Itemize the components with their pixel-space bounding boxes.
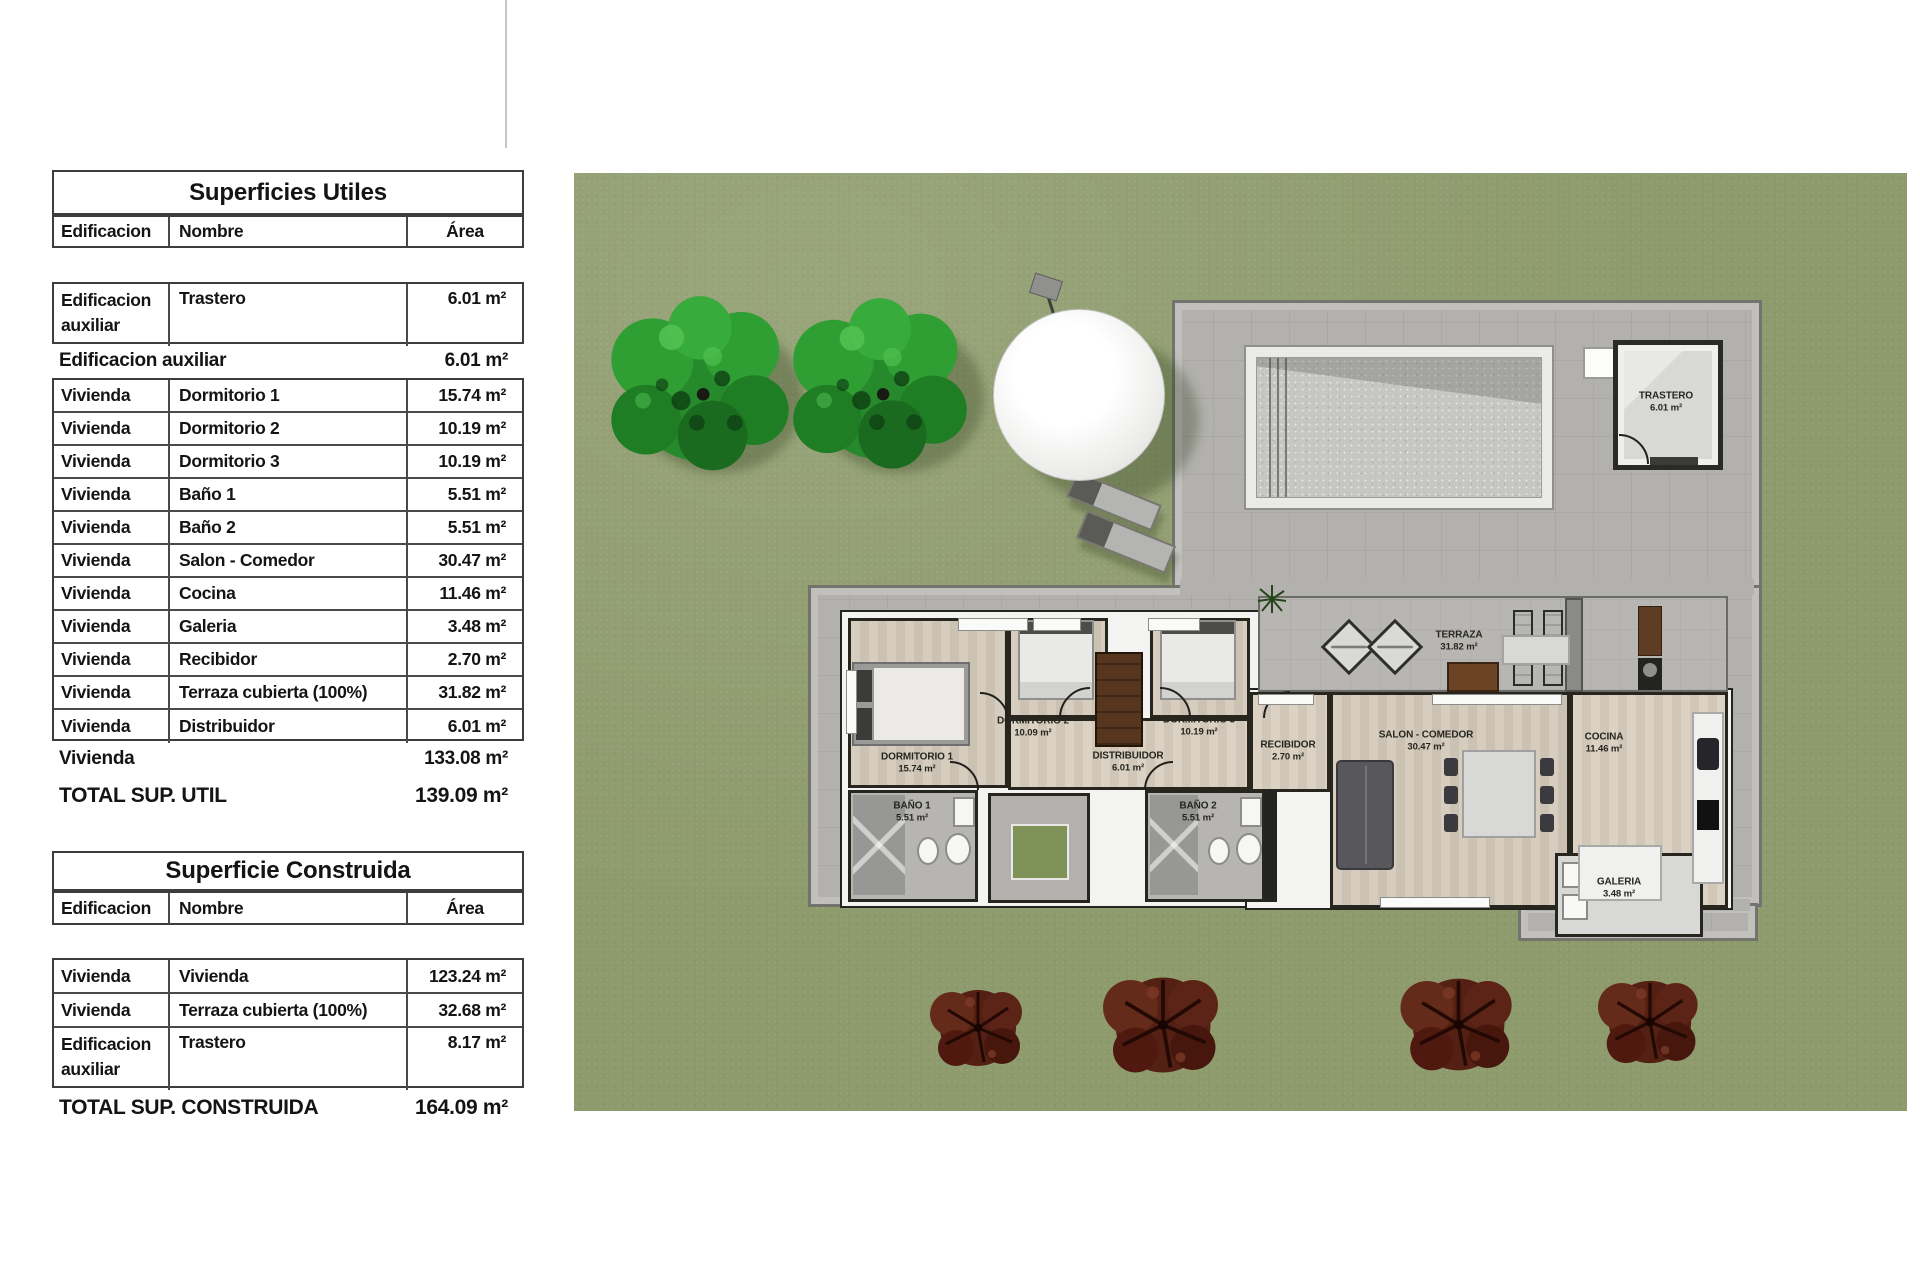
room-area: 30.47 m² (1379, 741, 1474, 753)
room-area: 10.19 m² (1163, 726, 1235, 738)
cell-area: 123.24 m² (406, 960, 522, 992)
room-area: 5.51 m² (893, 812, 930, 824)
cell-nombre: Dormitorio 3 (168, 446, 406, 477)
cell-area: 3.48 m² (406, 611, 522, 642)
cell-area: 8.17 m² (406, 1028, 522, 1090)
table-row: ViviendaDormitorio 210.19 m² (54, 413, 522, 446)
cell-area: 11.46 m² (406, 578, 522, 609)
cell-nombre: Distribuidor (168, 710, 406, 743)
cell-nombre: Dormitorio 1 (168, 380, 406, 411)
table-row: ViviendaBaño 25.51 m² (54, 512, 522, 545)
cell-nombre: Vivienda (168, 960, 406, 992)
cell-area: 30.47 m² (406, 545, 522, 576)
label-terraza: TERRAZA31.82 m² (1435, 628, 1482, 653)
table-row: ViviendaDormitorio 310.19 m² (54, 446, 522, 479)
cell-edificacion: Vivienda (54, 413, 168, 444)
table-title-text: Superficies Utiles (189, 179, 387, 207)
room-name: DORMITORIO 1 (881, 750, 953, 763)
room-area: 31.82 m² (1435, 641, 1482, 653)
cell-edificacion: Vivienda (54, 545, 168, 576)
superficies-utiles-title: Superficies Utiles (52, 170, 524, 215)
room-area: 6.01 m² (1639, 402, 1693, 414)
superficies-utiles-rows: Edificacion auxiliarTrastero6.01 m² (52, 282, 524, 344)
label-dormitorio-2: DORMITORIO 210.09 m² (997, 714, 1069, 739)
room-area: 2.70 m² (1260, 751, 1315, 763)
table-row: ViviendaTerraza cubierta (100%)31.82 m² (54, 677, 522, 710)
table-row: ViviendaCocina11.46 m² (54, 578, 522, 611)
table-row: Edificacion auxiliarTrastero6.01 m² (54, 284, 522, 346)
page: Superficies Utiles Edificacion Nombre Ár… (0, 0, 1920, 1280)
cell-nombre: Trastero (168, 284, 406, 346)
label-cocina: COCINA11.46 m² (1585, 730, 1624, 755)
cell-edificacion: Edificacion auxiliar (54, 1028, 168, 1090)
cell-area: 32.68 m² (406, 994, 522, 1026)
room-name: BAÑO 1 (893, 799, 930, 812)
superficie-construida-rows: ViviendaVivienda123.24 m²ViviendaTerraza… (52, 958, 524, 1088)
cell-nombre: Recibidor (168, 644, 406, 675)
superficies-utiles-total: TOTAL SUP. UTIL139.09 m² (52, 776, 524, 816)
cell-nombre: Baño 1 (168, 479, 406, 510)
label-dormitorio-3: DORMITORIO 310.19 m² (1163, 713, 1235, 738)
window (1033, 618, 1081, 631)
table-row: ViviendaRecibidor2.70 m² (54, 644, 522, 677)
cell-edificacion: Vivienda (54, 578, 168, 609)
cell-edificacion: Vivienda (54, 512, 168, 543)
label-trastero: TRASTERO6.01 m² (1639, 389, 1693, 414)
cell-area: 5.51 m² (406, 512, 522, 543)
cell-edificacion: Vivienda (54, 960, 168, 992)
cell-edificacion: Vivienda (54, 380, 168, 411)
parasol-anchor (1030, 273, 1063, 301)
window (1432, 694, 1562, 705)
cell-nombre: Terraza cubierta (100%) (168, 994, 406, 1026)
room-name: TERRAZA (1435, 628, 1482, 641)
column-header-area: Área (406, 893, 522, 923)
room-name: DORMITORIO 2 (997, 714, 1069, 727)
cell-edificacion: Vivienda (54, 994, 168, 1026)
total-label: TOTAL SUP. CONSTRUIDA (52, 1096, 318, 1120)
cell-nombre: Baño 2 (168, 512, 406, 543)
cell-nombre: Dormitorio 2 (168, 413, 406, 444)
cell-area: 15.74 m² (406, 380, 522, 411)
total-value: 139.09 m² (415, 784, 524, 808)
column-header-area: Área (406, 217, 522, 246)
window (1148, 618, 1200, 631)
cell-edificacion: Vivienda (54, 479, 168, 510)
total-value: 164.09 m² (415, 1096, 524, 1120)
cell-area: 10.19 m² (406, 446, 522, 477)
room-area: 6.01 m² (1092, 762, 1163, 774)
column-header-edificacion: Edificacion (54, 217, 168, 246)
label-bano-1: BAÑO 15.51 m² (893, 799, 930, 824)
cell-edificacion: Vivienda (54, 710, 168, 743)
label-galeria: GALERIA3.48 m² (1597, 875, 1641, 900)
label-salon-comedor: SALON - COMEDOR30.47 m² (1379, 728, 1474, 753)
total-label: TOTAL SUP. UTIL (52, 784, 227, 808)
window (958, 618, 1028, 631)
superficies-utiles-header: Edificacion Nombre Área (52, 215, 524, 248)
table-title-text: Superficie Construida (165, 857, 410, 885)
red-tree-icon (1386, 952, 1531, 1097)
summary-value: 6.01 m² (445, 350, 524, 372)
room-area: 10.09 m² (997, 727, 1069, 739)
table-row: ViviendaTerraza cubierta (100%)32.68 m² (54, 994, 522, 1028)
room-name: BAÑO 2 (1179, 799, 1216, 812)
cell-edificacion: Vivienda (54, 611, 168, 642)
table-row: ViviendaBaño 15.51 m² (54, 479, 522, 512)
window (846, 670, 857, 734)
table-row: ViviendaDormitorio 115.74 m² (54, 380, 522, 413)
room-name: SALON - COMEDOR (1379, 728, 1474, 741)
room-name: COCINA (1585, 730, 1624, 743)
window (1258, 694, 1314, 705)
label-recibidor: RECIBIDOR2.70 m² (1260, 738, 1315, 763)
green-tree-icon (787, 295, 973, 481)
table-row: ViviendaVivienda123.24 m² (54, 960, 522, 994)
label-bano-2: BAÑO 25.51 m² (1179, 799, 1216, 824)
superficies-utiles-summary: Edificacion auxiliar6.01 m² (52, 344, 524, 378)
column-header-nombre: Nombre (168, 893, 406, 923)
summary-label: Vivienda (52, 748, 134, 770)
superficie-construida-title: Superficie Construida (52, 851, 524, 891)
parasol (993, 309, 1165, 481)
table-row: Edificacion auxiliarTrastero8.17 m² (54, 1028, 522, 1090)
room-area: 11.46 m² (1585, 743, 1624, 755)
cell-nombre: Terraza cubierta (100%) (168, 677, 406, 708)
table-row: ViviendaGaleria3.48 m² (54, 611, 522, 644)
room-name: DORMITORIO 3 (1163, 713, 1235, 726)
room-area: 3.48 m² (1597, 888, 1641, 900)
cell-nombre: Trastero (168, 1028, 406, 1090)
green-tree-icon (605, 293, 795, 483)
cell-nombre: Salon - Comedor (168, 545, 406, 576)
cell-edificacion: Vivienda (54, 446, 168, 477)
cell-area: 10.19 m² (406, 413, 522, 444)
table-row: ViviendaSalon - Comedor30.47 m² (54, 545, 522, 578)
room-name: RECIBIDOR (1260, 738, 1315, 751)
room-name: TRASTERO (1639, 389, 1693, 402)
cell-area: 6.01 m² (406, 284, 522, 346)
cell-nombre: Galeria (168, 611, 406, 642)
summary-label: Edificacion auxiliar (52, 350, 226, 372)
room-area: 15.74 m² (881, 763, 953, 775)
cell-area: 5.51 m² (406, 479, 522, 510)
superficies-utiles-summary: Vivienda133.08 m² (52, 741, 524, 776)
cell-edificacion: Vivienda (54, 644, 168, 675)
column-header-nombre: Nombre (168, 217, 406, 246)
superficies-utiles-rows: ViviendaDormitorio 115.74 m²ViviendaDorm… (52, 378, 524, 741)
room-name: DISTRIBUIDOR (1092, 749, 1163, 762)
room-area: 5.51 m² (1179, 812, 1216, 824)
red-tree-icon (1088, 950, 1238, 1100)
cell-area: 31.82 m² (406, 677, 522, 708)
cell-edificacion: Vivienda (54, 677, 168, 708)
red-tree-icon (918, 968, 1038, 1088)
cell-area: 2.70 m² (406, 644, 522, 675)
red-tree-icon (1585, 957, 1715, 1087)
cell-nombre: Cocina (168, 578, 406, 609)
room-name: GALERIA (1597, 875, 1641, 888)
site-plan: DORMITORIO 115.74 m²DORMITORIO 210.09 m²… (574, 173, 1907, 1111)
window (1380, 897, 1490, 908)
column-header-edificacion: Edificacion (54, 893, 168, 923)
summary-value: 133.08 m² (424, 748, 524, 770)
label-distribuidor: DISTRIBUIDOR6.01 m² (1092, 749, 1163, 774)
cell-area: 6.01 m² (406, 710, 522, 743)
superficie-construida-header: Edificacion Nombre Área (52, 891, 524, 925)
label-dormitorio-1: DORMITORIO 115.74 m² (881, 750, 953, 775)
cell-edificacion: Edificacion auxiliar (54, 284, 168, 346)
superficie-construida-total: TOTAL SUP. CONSTRUIDA164.09 m² (52, 1088, 524, 1128)
table-row: ViviendaDistribuidor6.01 m² (54, 710, 522, 743)
potted-plant-icon (1258, 585, 1286, 613)
